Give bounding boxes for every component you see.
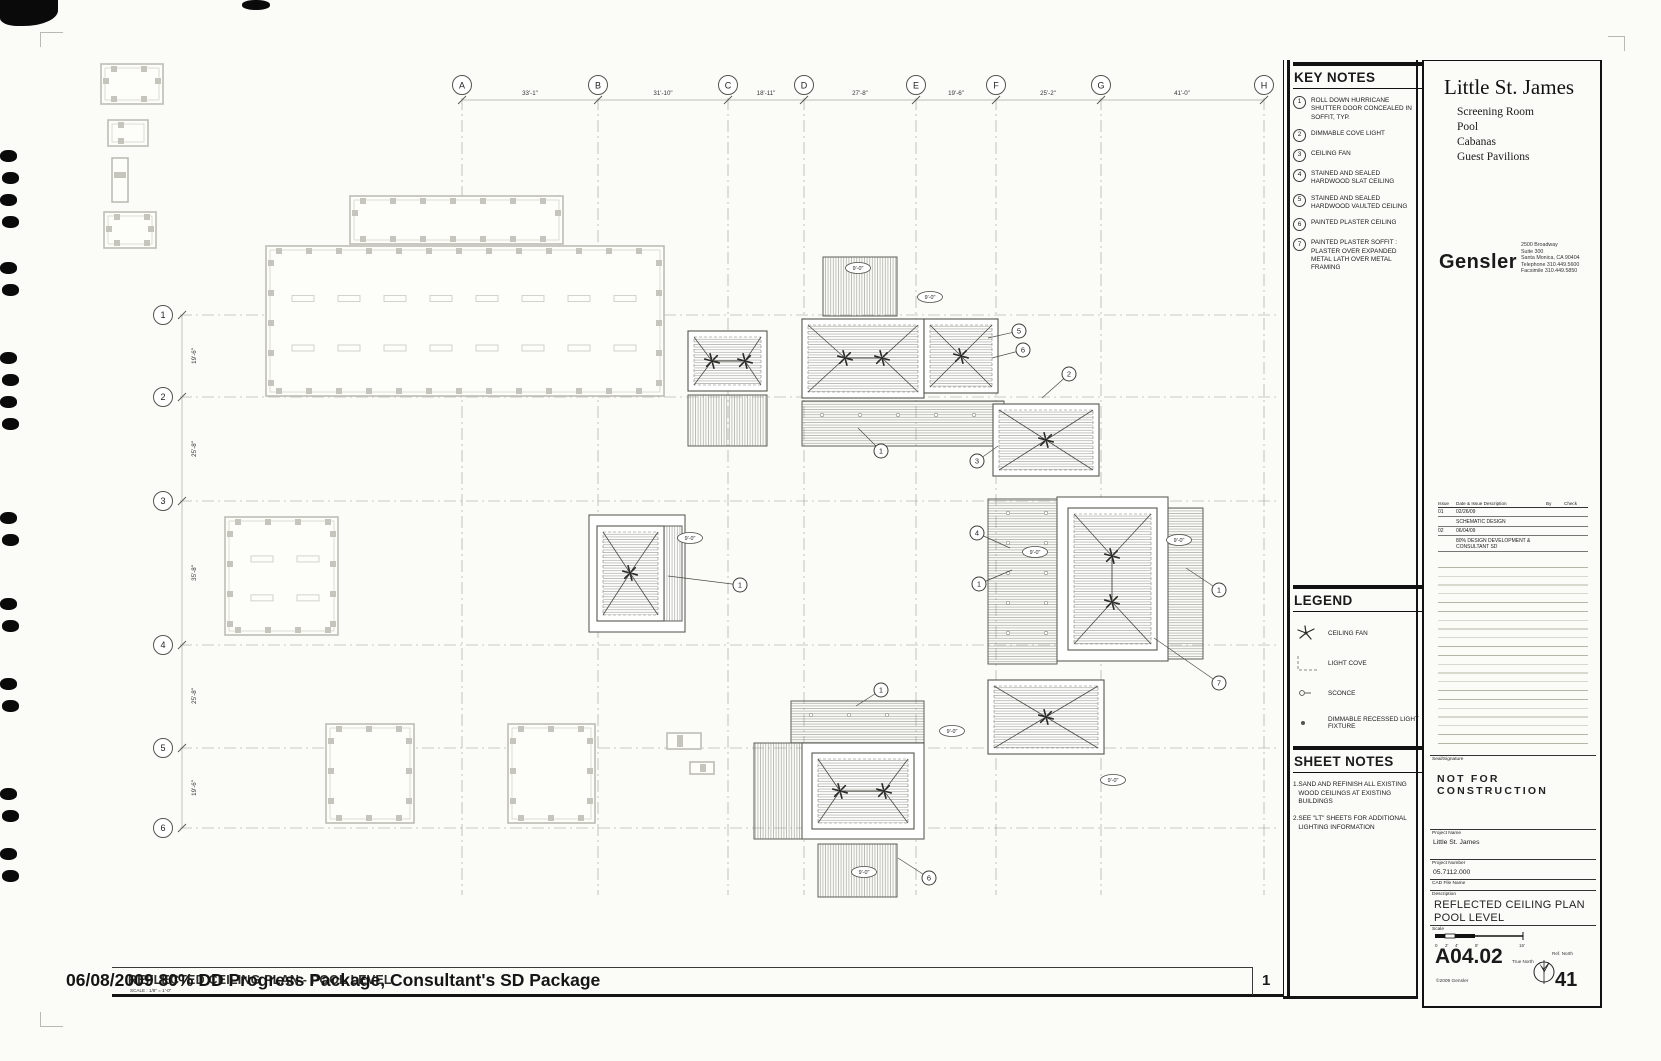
issue-cell: 01 <box>1438 509 1456 515</box>
column-square <box>587 798 593 804</box>
key-note-text: ROLL DOWN HURRICANE SHUTTER DOOR CONCEAL… <box>1311 96 1415 122</box>
column-bubble-label: A <box>459 81 465 91</box>
firm-address-line: Suite 300 <box>1521 249 1580 256</box>
column-square <box>144 214 150 220</box>
key-note-number: 4 <box>1293 169 1306 182</box>
column-square <box>111 66 117 72</box>
recessed-light <box>1044 511 1047 514</box>
key-note-item: 2DIMMABLE COVE LIGHT <box>1293 129 1423 142</box>
binder-hole <box>0 150 17 162</box>
column-bubble-label: D <box>801 81 808 91</box>
key-notes-panel: KEY NOTES 1ROLL DOWN HURRICANE SHUTTER D… <box>1293 62 1423 273</box>
ceiling-fan-icon <box>1293 624 1319 642</box>
ceiling-height-text: 9'-0" <box>685 536 696 542</box>
column-square <box>360 236 366 242</box>
column-square <box>456 248 462 254</box>
recessed-light <box>934 413 937 416</box>
column-square <box>336 388 342 394</box>
keynote-bubble-number: 6 <box>1021 346 1025 355</box>
firm-address-line: Telephone 310.449.5600 <box>1521 262 1580 269</box>
issue-cell <box>1438 519 1456 525</box>
key-note-item: 7PAINTED PLASTER SOFFIT : PLASTER OVER E… <box>1293 238 1423 272</box>
vault-slats <box>1074 514 1151 644</box>
key-note-text: DIMMABLE COVE LIGHT <box>1311 129 1385 142</box>
key-note-text: PAINTED PLASTER SOFFIT : PLASTER OVER EX… <box>1311 238 1415 272</box>
firm-address-line: Facsimile 310.449.5850 <box>1521 268 1580 275</box>
issue-header-cell: By <box>1546 501 1564 506</box>
column-square <box>328 798 334 804</box>
column-square <box>306 388 312 394</box>
column-square <box>450 236 456 242</box>
ref-north-label: Ref. North <box>1552 951 1573 956</box>
row-dimension: 19'-6" <box>191 348 198 364</box>
column-square <box>555 210 561 216</box>
column-square <box>396 815 402 821</box>
ceiling-height-text: 9'-0" <box>1108 778 1119 784</box>
issue-table-row: 80% DESIGN DEVELOPMENT & CONSULTANT SD <box>1438 536 1588 552</box>
slat-ceiling-area <box>688 395 767 446</box>
column-square <box>120 172 126 178</box>
column-square <box>450 198 456 204</box>
description-label: Description <box>1430 890 1596 897</box>
column-square <box>516 388 522 394</box>
column-square <box>155 78 161 84</box>
slat-ceiling-area <box>1168 508 1203 659</box>
project-subtitle: Screening Room <box>1457 105 1534 120</box>
binder-hole <box>0 788 17 800</box>
column-square <box>540 198 546 204</box>
recessed-light <box>858 413 861 416</box>
column-square <box>390 198 396 204</box>
column-square <box>268 260 274 266</box>
legend-label: DIMMABLE RECESSED LIGHT FIXTURE <box>1328 716 1423 730</box>
existing-building <box>225 517 338 635</box>
legend-label: SCONCE <box>1328 690 1355 697</box>
page-number: 41 <box>1555 969 1577 992</box>
plan-shape <box>839 790 842 793</box>
column-square <box>406 768 412 774</box>
issue-table-header: IssueDate & Issue DescriptionByCheck <box>1438 499 1588 508</box>
plan-shape <box>629 572 632 575</box>
recessed-light <box>1006 631 1009 634</box>
sheet-notes-panel: SHEET NOTES 1.SAND AND REFINISH ALL EXIS… <box>1293 746 1423 832</box>
key-note-number: 7 <box>1293 238 1306 251</box>
ceiling-height-text: 9'-0" <box>859 870 870 876</box>
key-note-item: 6PAINTED PLASTER CEILING <box>1293 218 1423 231</box>
project-subtitle: Cabanas <box>1457 135 1534 150</box>
panel-divider-left-inner <box>1287 60 1290 998</box>
column-square <box>396 726 402 732</box>
binder-hole <box>2 172 19 184</box>
row-bubble-label: 1 <box>160 310 165 320</box>
column-square <box>510 738 516 744</box>
ceiling-height-text: 9'-0" <box>925 295 936 301</box>
column-square <box>325 519 331 525</box>
column-square <box>406 738 412 744</box>
corner-mark <box>1608 36 1625 51</box>
sheet-number: A04.02 <box>1435 945 1503 969</box>
issue-cell: 02/26/09 <box>1456 509 1546 515</box>
column-square <box>486 248 492 254</box>
sheet-note-item: 1.SAND AND REFINISH ALL EXISTING WOOD CE… <box>1293 781 1423 807</box>
column-dimension: 33'-1" <box>522 90 538 97</box>
vault-slats <box>808 325 918 392</box>
recessed-light <box>1006 601 1009 604</box>
existing-building <box>101 64 163 104</box>
existing-building <box>266 246 664 396</box>
legend-item-sconce: SCONCE <box>1293 684 1423 702</box>
issue-header-cell: Check <box>1564 501 1588 506</box>
keynote-bubble-number: 1 <box>879 686 883 695</box>
key-note-text: PAINTED PLASTER CEILING <box>1311 218 1396 231</box>
existing-building <box>326 724 414 823</box>
recessed-light <box>1006 511 1009 514</box>
keynote-bubble-number: 1 <box>738 581 742 590</box>
copyright: ©2009 Gensler <box>1436 979 1468 984</box>
sheet-notes-title: SHEET NOTES <box>1293 746 1423 773</box>
binder-hole <box>2 216 19 228</box>
recessed-light <box>972 413 975 416</box>
issue-cell <box>1546 528 1564 534</box>
column-dimension: 18'-11" <box>757 90 776 97</box>
recessed-light <box>1044 541 1047 544</box>
binder-hole <box>0 598 17 610</box>
cad-file-label: CAD File Name <box>1430 879 1596 886</box>
issue-cell <box>1546 519 1564 525</box>
sheet-note-text: SAND AND REFINISH ALL EXISTING WOOD CEIL… <box>1298 781 1410 807</box>
column-bubble-label: E <box>913 81 919 91</box>
sheet-notes-list: 1.SAND AND REFINISH ALL EXISTING WOOD CE… <box>1293 781 1423 832</box>
binder-hole <box>0 512 17 524</box>
column-square <box>144 240 150 246</box>
column-square <box>396 388 402 394</box>
column-square <box>111 96 117 102</box>
scale-label: Scale <box>1430 925 1596 932</box>
legend-label: CEILING FAN <box>1328 630 1368 637</box>
key-note-item: 4STAINED AND SEALED HARDWOOD SLAT CEILIN… <box>1293 169 1423 187</box>
key-note-text: STAINED AND SEALED HARDWOOD VAULTED CEIL… <box>1311 194 1415 212</box>
legend-item-ceiling-fan: CEILING FAN <box>1293 624 1423 642</box>
binder-hole <box>2 534 19 546</box>
recessed-light <box>1006 541 1009 544</box>
key-note-number: 5 <box>1293 194 1306 207</box>
issue-header-cell: Issue <box>1438 501 1456 506</box>
plan-shape <box>1045 439 1048 442</box>
sheet-note-text: SEE "LT" SHEETS FOR ADDITIONAL LIGHTING … <box>1298 815 1410 832</box>
column-square <box>606 388 612 394</box>
column-square <box>268 350 274 356</box>
key-notes-title: KEY NOTES <box>1293 62 1423 89</box>
key-note-item: 1ROLL DOWN HURRICANE SHUTTER DOOR CONCEA… <box>1293 96 1423 122</box>
existing-building <box>508 724 595 823</box>
plan-shape <box>1111 555 1114 558</box>
legend-panel: LEGEND CEILING FAN LIGHT COVE SCONCE <box>1293 585 1423 732</box>
binder-hole <box>0 396 17 408</box>
column-square <box>396 248 402 254</box>
row-bubble-label: 4 <box>160 640 165 650</box>
project-number-label: Project Number <box>1430 859 1596 866</box>
issue-cell <box>1546 538 1564 550</box>
recessed-light <box>809 713 812 716</box>
seal-label: Seal/Signature <box>1430 755 1596 762</box>
row-dimension: 25'-8" <box>191 441 198 457</box>
column-square <box>328 738 334 744</box>
project-subtitle: Guest Pavilions <box>1457 150 1534 165</box>
binder-hole <box>2 810 19 822</box>
column-square <box>306 248 312 254</box>
project-number-value: 05.7112.000 <box>1430 867 1470 876</box>
sheet-note-item: 2.SEE "LT" SHEETS FOR ADDITIONAL LIGHTIN… <box>1293 815 1423 832</box>
column-square <box>636 248 642 254</box>
key-note-text: CEILING FAN <box>1311 149 1351 162</box>
column-square <box>578 726 584 732</box>
column-square <box>366 815 372 821</box>
plan-shape <box>744 360 747 363</box>
issue-table-rows: 0102/26/09SCHEMATIC DESIGN0206/04/0980% … <box>1438 508 1588 552</box>
column-square <box>456 388 462 394</box>
legend-label: LIGHT COVE <box>1328 660 1367 667</box>
firm-address-line: Santa Monica, CA 90404 <box>1521 255 1580 262</box>
row-dimension: 25'-8" <box>191 688 198 704</box>
column-square <box>265 627 271 633</box>
issue-cell <box>1546 509 1564 515</box>
key-note-item: 3CEILING FAN <box>1293 149 1423 162</box>
issue-cell <box>1564 528 1588 534</box>
keynote-bubble-number: 1 <box>879 447 883 456</box>
column-square <box>516 248 522 254</box>
column-square <box>235 519 241 525</box>
issue-header-cell: Date & Issue Description <box>1456 501 1546 506</box>
issue-cell: SCHEMATIC DESIGN <box>1456 519 1546 525</box>
row-bubble-label: 5 <box>160 743 165 753</box>
ceiling-height-text: 9'-0" <box>1174 538 1185 544</box>
issue-table-row: SCHEMATIC DESIGN <box>1438 517 1588 527</box>
column-square <box>106 226 112 232</box>
issue-cell <box>1438 538 1456 550</box>
keynote-bubble-number: 1 <box>1217 586 1221 595</box>
issue-cell: 02 <box>1438 528 1456 534</box>
sconce-icon <box>1293 684 1319 702</box>
column-square <box>548 815 554 821</box>
issue-table-row: 0206/04/09 <box>1438 527 1588 537</box>
column-square <box>677 741 683 747</box>
description-line1: REFLECTED CEILING PLAN <box>1434 899 1585 912</box>
scale-tick-label: 16' <box>1519 943 1525 948</box>
title-block: Little St. James Screening RoomPoolCaban… <box>1422 60 1602 1008</box>
column-square <box>114 240 120 246</box>
column-square <box>426 388 432 394</box>
column-square <box>480 236 486 242</box>
column-square <box>141 66 147 72</box>
column-square <box>366 726 372 732</box>
column-square <box>656 320 662 326</box>
column-square <box>606 248 612 254</box>
column-square <box>103 78 109 84</box>
column-dimension: 27'-8" <box>852 90 868 97</box>
column-square <box>148 226 154 232</box>
column-square <box>518 815 524 821</box>
column-square <box>330 531 336 537</box>
sheet: ABCDEFGH33'-1"31'-10"18'-11"27'-8"19'-6"… <box>0 0 1661 1061</box>
row-dimension: 35'-8" <box>191 565 198 581</box>
existing-building <box>112 158 128 202</box>
legend-item-dimmable-recessed: DIMMABLE RECESSED LIGHT FIXTURE <box>1293 714 1423 732</box>
description-line2: POOL LEVEL <box>1434 912 1585 925</box>
issue-cell: 80% DESIGN DEVELOPMENT & CONSULTANT SD <box>1456 538 1546 550</box>
firm-address-line: 2500 Broadway <box>1521 242 1580 249</box>
slat-ceiling-area <box>802 401 1004 446</box>
not-for-construction: NOT FOR CONSTRUCTION <box>1437 773 1600 797</box>
column-bubble-label: F <box>993 81 999 91</box>
detail-number: 1 <box>1262 972 1270 989</box>
key-notes-list: 1ROLL DOWN HURRICANE SHUTTER DOOR CONCEA… <box>1293 96 1423 273</box>
column-dimension: 31'-10" <box>653 90 672 97</box>
ceiling-height-text: 9'-0" <box>1030 550 1041 556</box>
keynote-bubble-number: 5 <box>1017 327 1021 336</box>
column-square <box>677 735 683 741</box>
binder-hole <box>0 848 17 860</box>
corner-mark <box>40 32 63 47</box>
column-square <box>486 388 492 394</box>
key-note-text: STAINED AND SEALED HARDWOOD SLAT CEILING <box>1311 169 1415 187</box>
row-bubble-label: 3 <box>160 496 165 506</box>
recessed-light <box>847 713 850 716</box>
binder-hole <box>2 700 19 712</box>
column-square <box>330 591 336 597</box>
column-square <box>700 766 706 772</box>
project-subtitles: Screening RoomPoolCabanasGuest Pavilions <box>1457 105 1534 165</box>
project-title: Little St. James <box>1444 75 1574 100</box>
column-square <box>656 350 662 356</box>
column-square <box>587 738 593 744</box>
keynote-bubble-number: 6 <box>927 874 931 883</box>
column-square <box>366 248 372 254</box>
issue-table-empty-rows <box>1438 559 1588 749</box>
plan-shape <box>1045 716 1048 719</box>
column-bubble-label: H <box>1261 81 1268 91</box>
issue-cell <box>1564 519 1588 525</box>
column-square <box>510 198 516 204</box>
column-square <box>576 388 582 394</box>
column-square <box>268 380 274 386</box>
column-square <box>118 138 124 144</box>
column-square <box>510 798 516 804</box>
column-square <box>118 122 124 128</box>
column-square <box>295 519 301 525</box>
keynotes-panel-bottom-rule <box>1283 996 1418 999</box>
recessed-light <box>896 413 899 416</box>
column-square <box>276 388 282 394</box>
project-name-label: Project Name <box>1430 829 1596 836</box>
binder-hole <box>0 678 17 690</box>
panel-divider-left-outer <box>1283 60 1284 998</box>
column-square <box>114 214 120 220</box>
existing-building <box>667 733 701 749</box>
column-bubble-label: B <box>595 81 601 91</box>
column-square <box>576 248 582 254</box>
sheet-description: REFLECTED CEILING PLAN POOL LEVEL <box>1434 899 1585 925</box>
column-square <box>636 388 642 394</box>
plan-shape <box>883 790 886 793</box>
recessed-light <box>1044 631 1047 634</box>
column-square <box>141 96 147 102</box>
slat-ceiling-area <box>791 701 924 743</box>
existing-building <box>350 196 563 244</box>
issue-cell <box>1564 509 1588 515</box>
column-square <box>546 248 552 254</box>
binder-hole <box>0 352 17 364</box>
column-square <box>227 531 233 537</box>
slat-ceiling-area <box>754 743 802 839</box>
keynote-bubble-number: 4 <box>975 529 979 538</box>
recessed-light <box>1044 601 1047 604</box>
key-note-item: 5STAINED AND SEALED HARDWOOD VAULTED CEI… <box>1293 194 1423 212</box>
column-square <box>518 726 524 732</box>
keynote-bubble-number: 2 <box>1067 370 1071 379</box>
column-square <box>227 591 233 597</box>
column-square <box>352 210 358 216</box>
binder-hole <box>0 194 17 206</box>
graphic-scale-bar <box>1435 932 1527 942</box>
recessed-light <box>1044 571 1047 574</box>
column-square <box>548 726 554 732</box>
legend-title: LEGEND <box>1293 585 1423 612</box>
ceiling-height-text: 9'-0" <box>947 729 958 735</box>
row-bubble-label: 2 <box>160 392 165 402</box>
keynote-bubble-number: 3 <box>975 457 979 466</box>
binder-hole <box>2 284 19 296</box>
key-note-number: 6 <box>1293 218 1306 231</box>
column-square <box>336 815 342 821</box>
drawing-title-bottom-rule <box>112 994 1283 997</box>
detail-number-tick <box>1252 967 1253 995</box>
keynote-bubble-number: 7 <box>1217 679 1221 688</box>
column-square <box>510 768 516 774</box>
plan-shape <box>1111 601 1114 604</box>
column-square <box>295 627 301 633</box>
issue-table-row: 0102/26/09 <box>1438 508 1588 518</box>
column-square <box>510 236 516 242</box>
legend-item-light-cove: LIGHT COVE <box>1293 654 1423 672</box>
column-square <box>656 260 662 266</box>
scan-blob <box>242 0 270 10</box>
column-square <box>578 815 584 821</box>
column-square <box>227 561 233 567</box>
dimmable-recessed-light-icon <box>1293 714 1319 732</box>
column-square <box>390 236 396 242</box>
key-note-number: 2 <box>1293 129 1306 142</box>
plan-shape <box>960 355 963 358</box>
binder-hole <box>2 870 19 882</box>
firm-logo: Gensler <box>1439 251 1517 274</box>
column-square <box>265 519 271 525</box>
column-square <box>546 388 552 394</box>
binder-hole <box>2 374 19 386</box>
project-subtitle: Pool <box>1457 120 1534 135</box>
column-square <box>336 726 342 732</box>
column-square <box>426 248 432 254</box>
column-square <box>227 621 233 627</box>
light-cove-icon <box>1293 654 1319 672</box>
recessed-light <box>885 713 888 716</box>
column-bubble-label: G <box>1097 81 1104 91</box>
column-square <box>235 627 241 633</box>
plan-shape <box>881 357 884 360</box>
column-dimension: 41'-0" <box>1174 90 1190 97</box>
column-square <box>330 621 336 627</box>
plan-shape <box>844 357 847 360</box>
binder-hole <box>2 418 19 430</box>
